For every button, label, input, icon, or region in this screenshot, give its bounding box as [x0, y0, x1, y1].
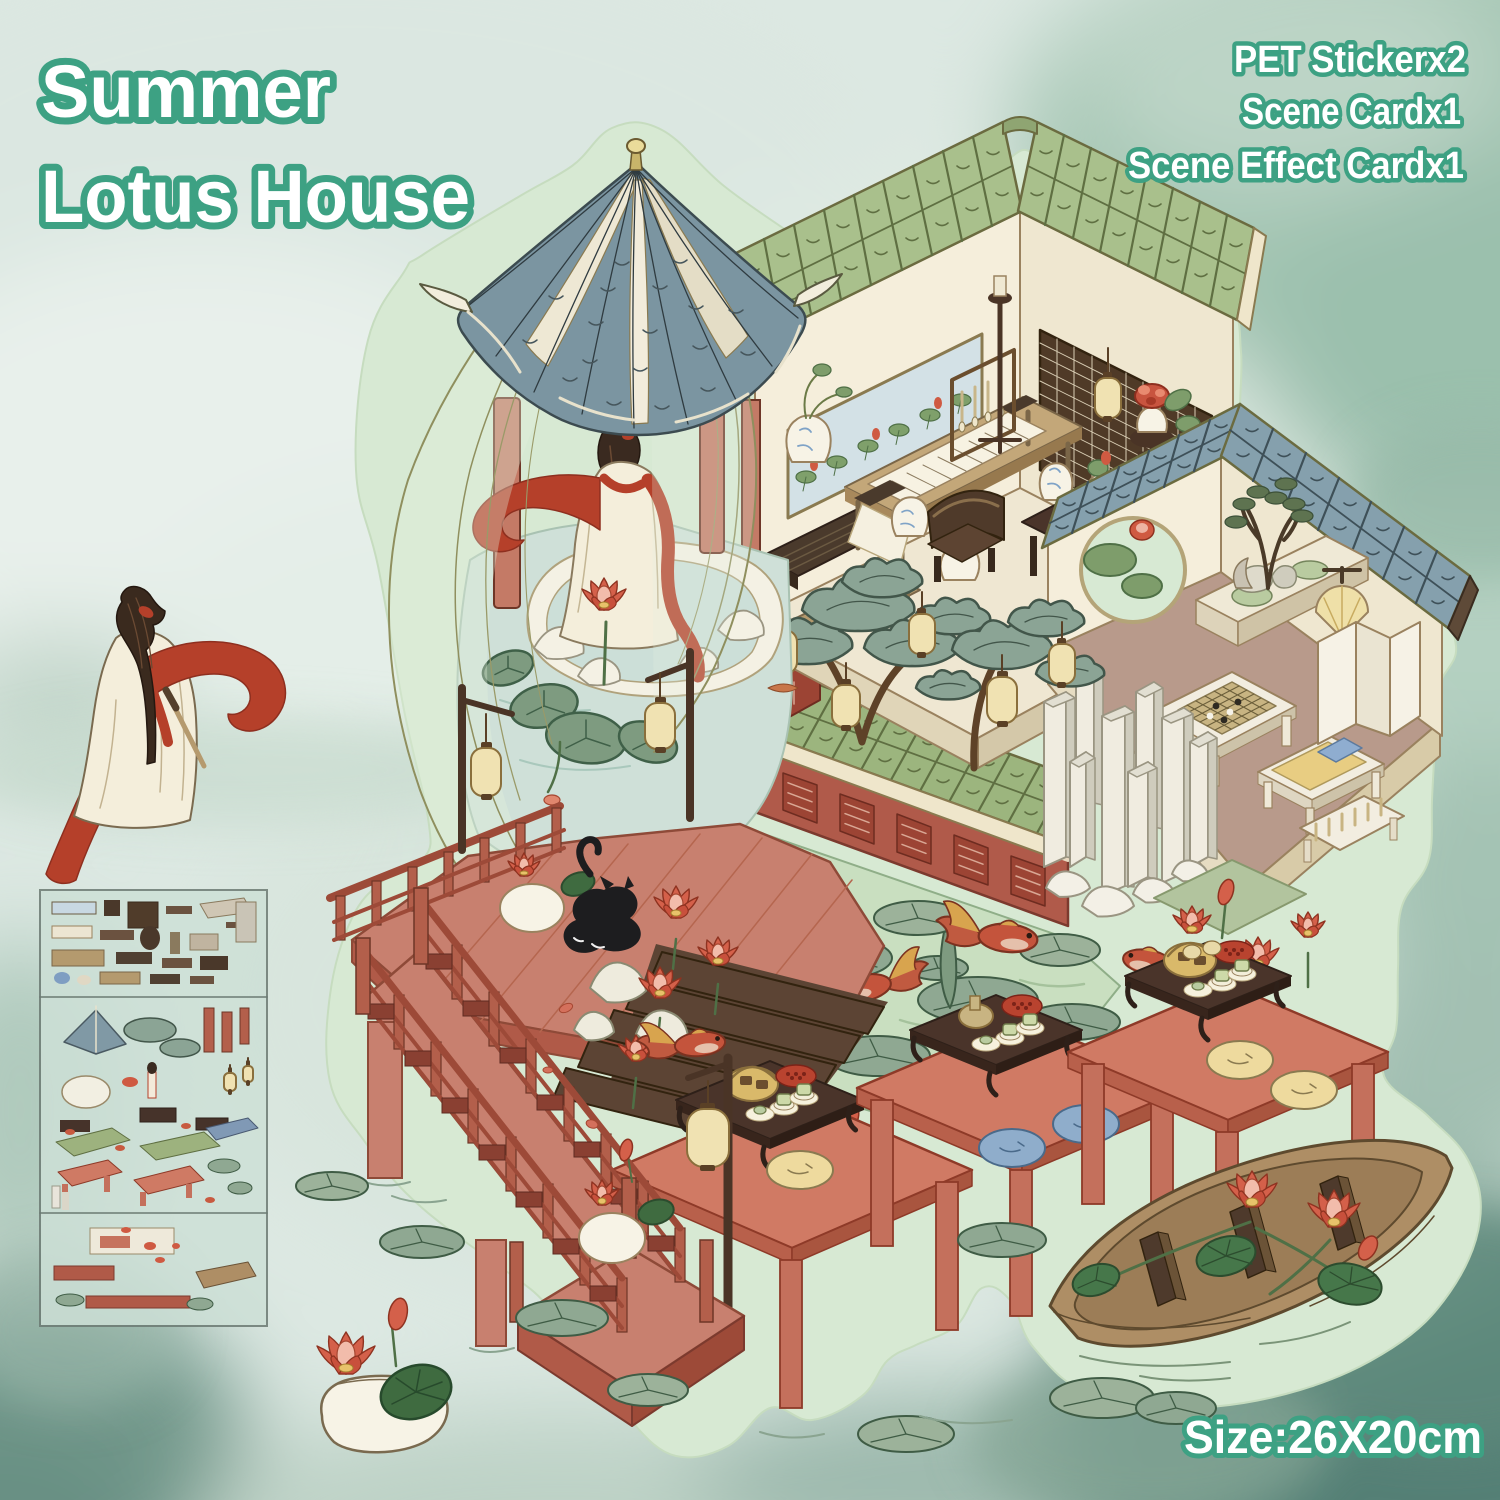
svg-text:Summer: Summer [41, 50, 331, 133]
svg-text:Scene Cardx1: Scene Cardx1 [1242, 91, 1461, 133]
svg-text:Scene Effect Cardx1: Scene Effect Cardx1 [1128, 145, 1464, 187]
svg-text:PET Stickerx2: PET Stickerx2 [1234, 39, 1466, 81]
svg-text:Lotus House: Lotus House [41, 155, 470, 238]
svg-text:Size:26X20cm: Size:26X20cm [1184, 1411, 1482, 1463]
